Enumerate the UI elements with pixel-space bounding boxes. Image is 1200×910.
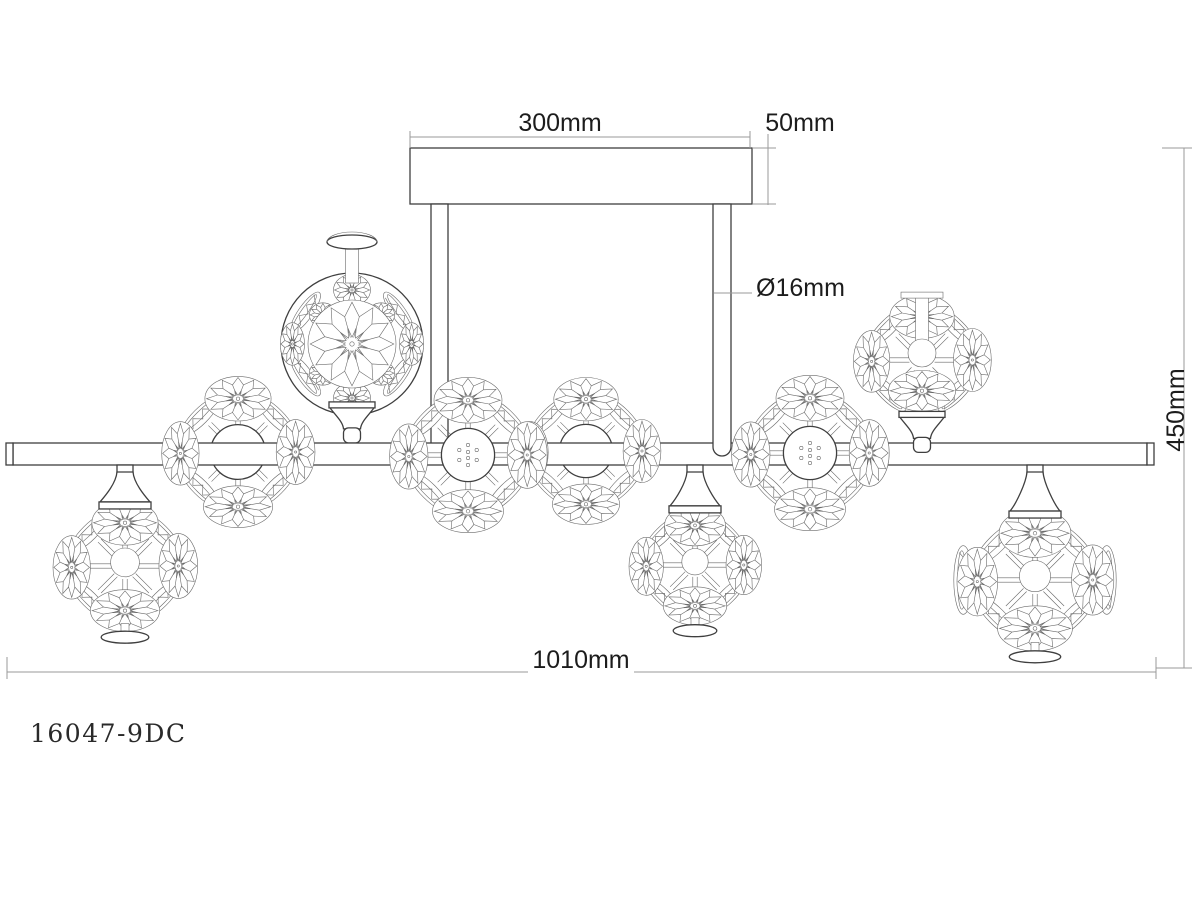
crystal-disc-face	[400, 323, 424, 366]
model-number: 16047-9DC	[30, 719, 187, 748]
socket-bell	[669, 465, 721, 513]
crystal-disc-face	[162, 422, 199, 485]
hub-plate	[441, 428, 494, 481]
crystal-disc-face	[276, 420, 315, 485]
crystal-disc-face	[623, 420, 661, 483]
crystal-disc-face	[390, 424, 428, 489]
ceiling-canopy	[410, 148, 752, 204]
crystal-disc-face	[888, 371, 955, 412]
crystal-disc-face	[434, 377, 502, 423]
crystal-disc-face	[433, 490, 504, 533]
crystal-cluster-big	[280, 232, 423, 415]
crystal-disc-face	[954, 329, 992, 392]
crystal-disc-face	[205, 376, 271, 421]
crystal-disc-face	[507, 422, 547, 489]
dim-label-canopy-height: 50mm	[765, 109, 834, 137]
chandelier-dimension-diagram: 300mm 50mm Ø16mm 450mm 1010mm 16047-9DC	[0, 0, 1200, 910]
crystal-disc-face	[726, 535, 762, 594]
socket-bell	[1009, 465, 1061, 518]
dim-label-fixture-width: 1010mm	[532, 646, 629, 674]
crystal-disc-face	[53, 536, 90, 599]
crystal-disc-face	[1072, 545, 1114, 615]
crystal-disc-face	[732, 422, 770, 487]
crystal-cluster-hang	[629, 505, 762, 637]
crystal-cluster-stand	[853, 292, 991, 416]
crystal-disc-face	[159, 534, 198, 599]
dim-label-canopy-width: 300mm	[518, 109, 601, 137]
technical-drawing-sheet: 300mm 50mm Ø16mm 450mm 1010mm 16047-9DC	[0, 0, 1200, 910]
crystal-disc-face	[203, 486, 272, 528]
hub-plate	[783, 426, 836, 479]
crystal-disc-face	[957, 547, 998, 616]
socket-bell	[329, 402, 375, 443]
crystal-disc-face	[308, 300, 396, 388]
crystal-disc-face	[849, 420, 889, 487]
crystal-disc-face	[280, 323, 304, 366]
dim-label-rod-diameter: Ø16mm	[756, 274, 845, 302]
crystal-disc-face	[552, 484, 619, 525]
crystal-cluster-hang	[53, 501, 198, 644]
mounting-rod-right	[713, 204, 731, 456]
crystal-disc-face	[853, 331, 889, 393]
dim-label-fixture-height: 450mm	[1162, 368, 1190, 451]
crystal-cluster-bardots	[390, 377, 548, 532]
crystal-disc-face	[776, 375, 844, 421]
crystal-disc-face	[554, 378, 618, 421]
crystal-cluster-bardots	[732, 375, 890, 530]
crystal-disc-face	[775, 488, 846, 531]
crystal-cluster-hang	[954, 509, 1116, 663]
crystal-disc-face	[629, 537, 663, 595]
socket-bell	[99, 465, 151, 509]
